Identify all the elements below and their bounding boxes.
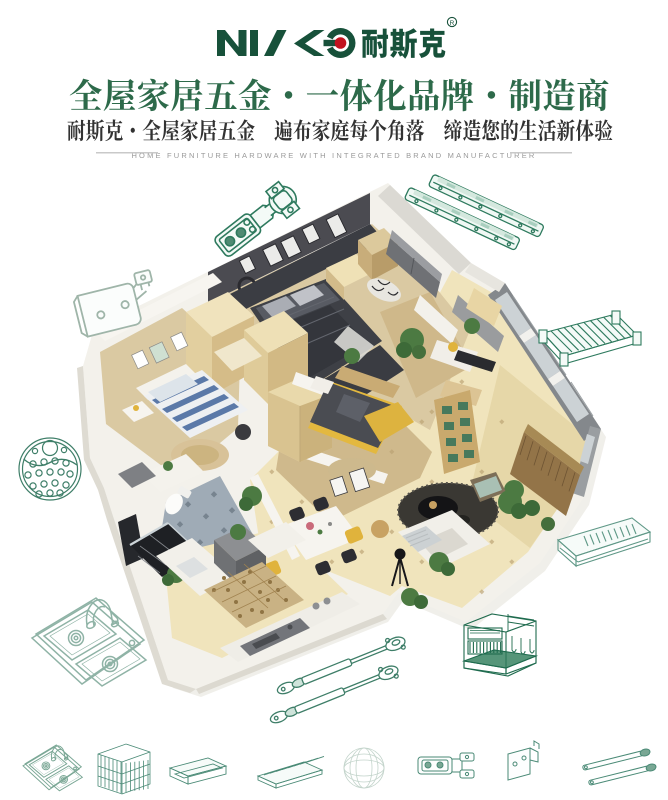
svg-text:R: R [450,20,455,27]
svg-text:HOME FURNITURE HARDWARE WITH I: HOME FURNITURE HARDWARE WITH INTEGRATED … [131,151,536,160]
